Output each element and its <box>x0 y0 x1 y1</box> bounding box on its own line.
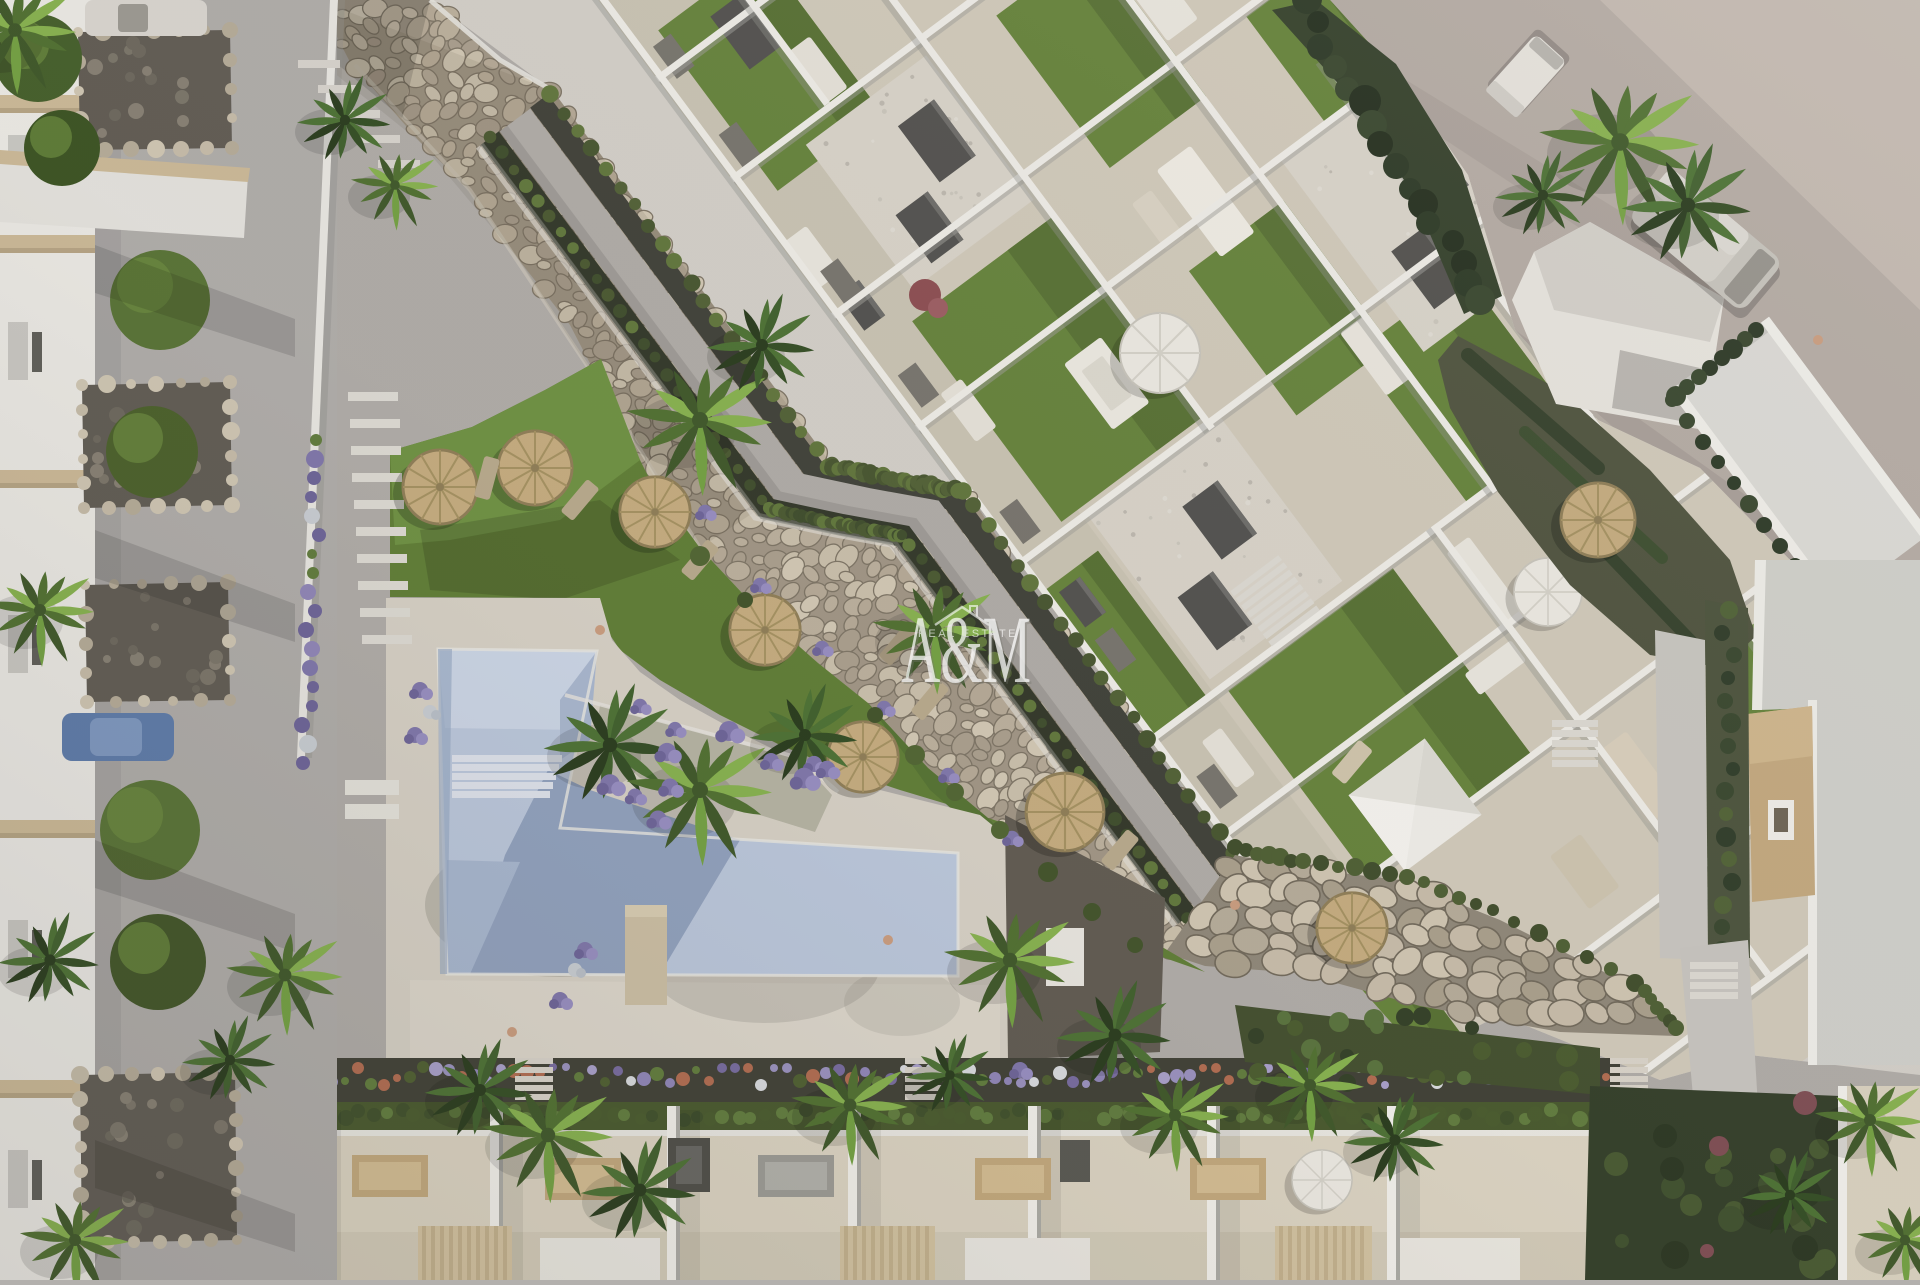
svg-text:REAL ESTATE: REAL ESTATE <box>918 628 1018 640</box>
svg-text:A&M: A&M <box>901 596 1031 703</box>
